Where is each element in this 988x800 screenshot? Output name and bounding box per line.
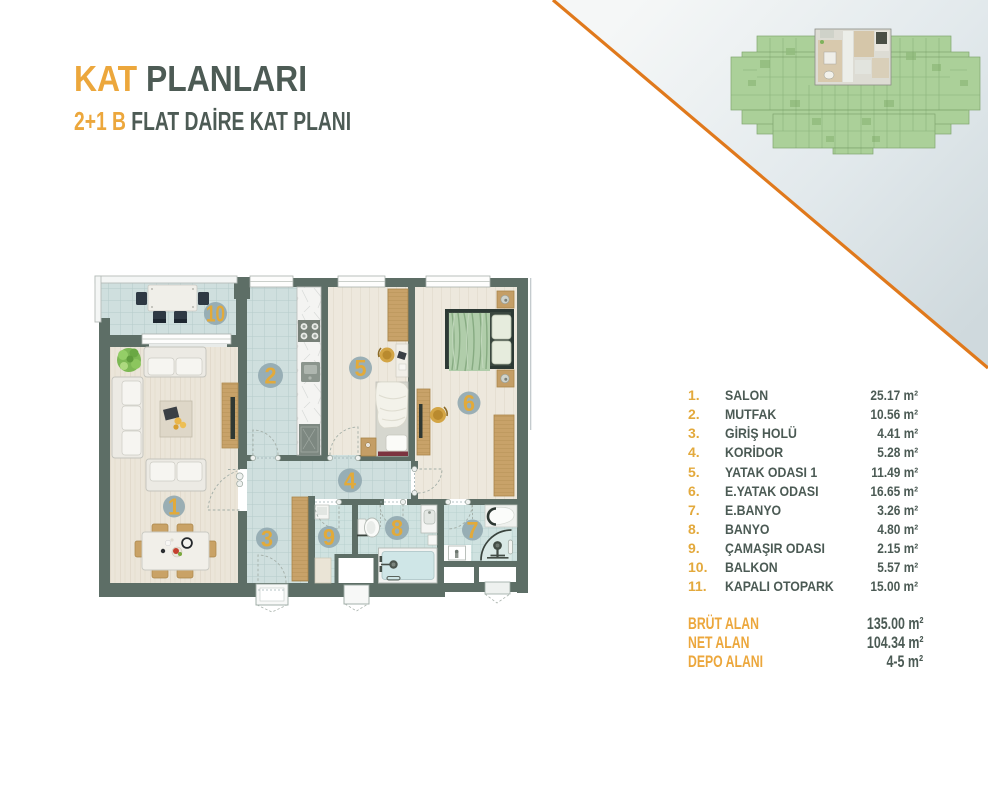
svg-text:10: 10 — [206, 301, 225, 327]
svg-text:8: 8 — [391, 515, 403, 541]
svg-text:9: 9 — [323, 524, 335, 550]
svg-text:7: 7 — [467, 517, 479, 543]
svg-text:6: 6 — [463, 390, 475, 416]
svg-text:1: 1 — [168, 494, 180, 520]
svg-text:2: 2 — [265, 363, 277, 389]
svg-text:5: 5 — [355, 355, 367, 381]
svg-text:3: 3 — [261, 526, 273, 552]
svg-text:4: 4 — [344, 468, 356, 494]
